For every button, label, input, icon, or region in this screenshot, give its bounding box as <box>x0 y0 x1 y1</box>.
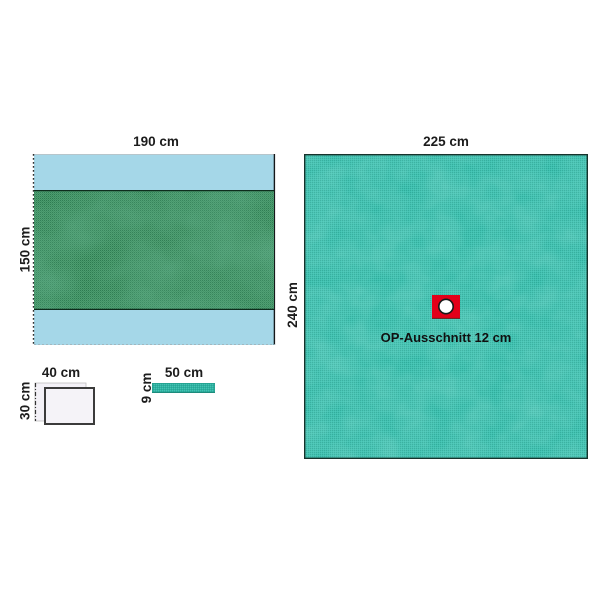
svg-text:50 cm: 50 cm <box>165 365 203 380</box>
svg-text:30 cm: 30 cm <box>18 382 33 420</box>
svg-text:190 cm: 190 cm <box>133 134 179 149</box>
svg-text:9 cm: 9 cm <box>139 373 154 404</box>
svg-text:225 cm: 225 cm <box>423 134 469 149</box>
svg-text:150 cm: 150 cm <box>18 227 33 273</box>
svg-text:40 cm: 40 cm <box>42 365 80 380</box>
svg-text:240 cm: 240 cm <box>285 282 300 328</box>
svg-text:OP-Ausschnitt 12 cm: OP-Ausschnitt 12 cm <box>381 330 512 345</box>
